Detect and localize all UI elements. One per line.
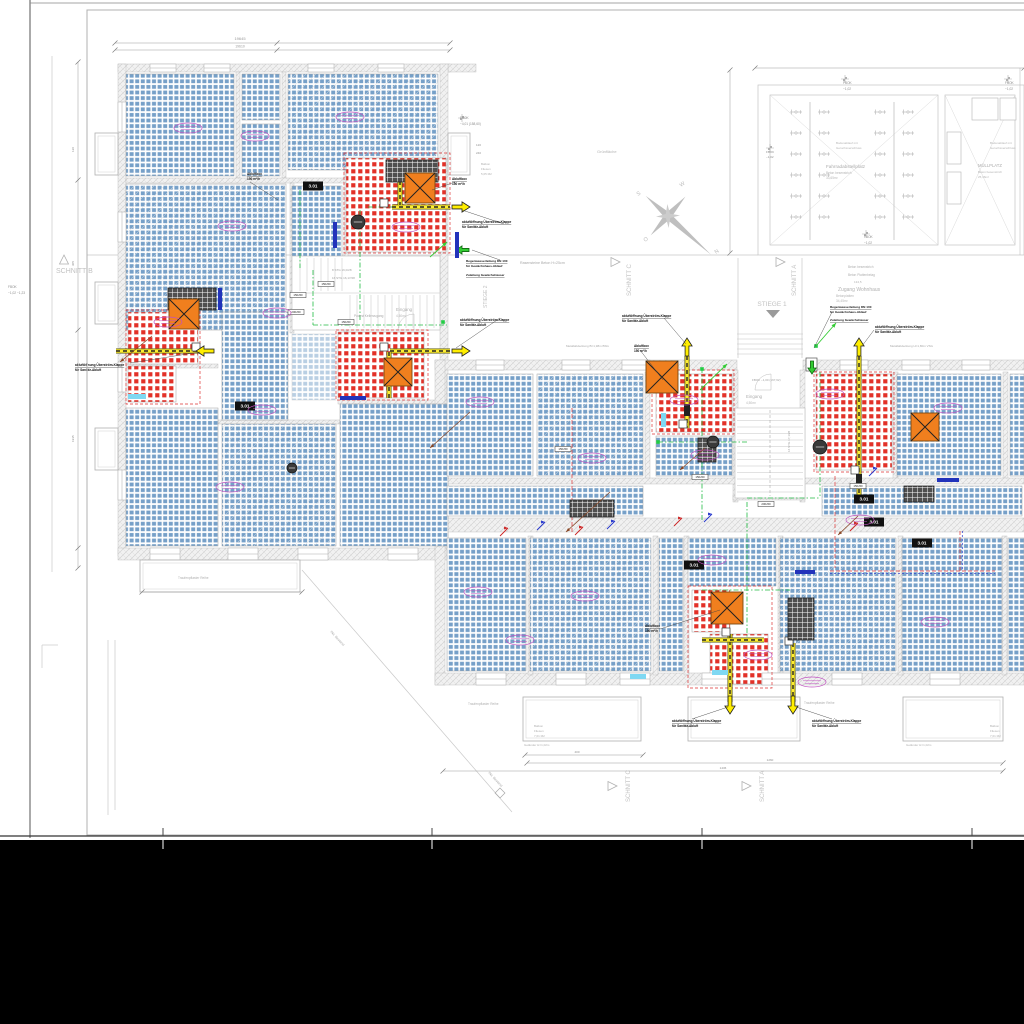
balcony bbox=[140, 560, 300, 592]
supply-node bbox=[656, 440, 660, 444]
wall-segment bbox=[1003, 372, 1008, 480]
plan-label: −1,02 bbox=[766, 155, 774, 159]
plan-label: Metallabdeckung B=1,98m BSG bbox=[566, 344, 609, 348]
boundary-point-diamond bbox=[495, 788, 505, 798]
plan-label: Regenwasserleitung DN 100 bbox=[466, 259, 508, 263]
plan-label: Eingang bbox=[396, 307, 413, 312]
plan-label: Betonplatten bbox=[836, 294, 854, 298]
plan-label: Traufenpflaster Reihe bbox=[468, 702, 499, 706]
balcony bbox=[95, 428, 118, 470]
plan-label: 7,01 M2 bbox=[990, 734, 1001, 738]
plan-label: Beton besenstrich bbox=[848, 265, 874, 269]
exhaust-fan-unit bbox=[384, 358, 412, 386]
bicycle-icon bbox=[902, 131, 914, 136]
plan-label: Bodenablauf mit bbox=[990, 141, 1012, 145]
plan-label: Traufenpflaster Reihe bbox=[804, 701, 835, 705]
plan-label: O bbox=[643, 236, 651, 244]
cross-quad bbox=[845, 77, 847, 79]
plan-label: Geruchsverschluss bbox=[836, 146, 862, 150]
plan-label: für Sanitär-Abluft bbox=[75, 368, 102, 372]
plan-label: −1,02 bbox=[843, 87, 851, 91]
bicycle-icon bbox=[818, 215, 830, 220]
plan-label: SCHNITT B bbox=[56, 268, 93, 275]
plan-label: 150 m³/h bbox=[645, 629, 658, 633]
plan-label: Fliesen bbox=[534, 729, 544, 733]
leader-line bbox=[862, 330, 874, 346]
component-bar bbox=[340, 396, 366, 400]
exhaust-fan-unit bbox=[646, 361, 678, 393]
plan-label: Pkt. Bestand bbox=[329, 630, 345, 647]
bicycle-icon bbox=[874, 194, 886, 199]
bicycle-icon bbox=[790, 110, 802, 115]
plan-label: FBOK bbox=[766, 150, 774, 154]
room-heated-zone bbox=[1010, 374, 1024, 476]
section-marker-triangle bbox=[608, 782, 617, 791]
bicycle-icon bbox=[790, 152, 802, 157]
room-heated-zone bbox=[126, 74, 234, 176]
ventilation-unit bbox=[788, 598, 814, 640]
balcony bbox=[95, 133, 118, 175]
plan-label: Zugang Wohnhaus bbox=[838, 287, 881, 293]
plan-label: SCHNITT A bbox=[760, 771, 766, 802]
plan-label: für Sanitär-Abluft bbox=[462, 225, 489, 229]
balcony bbox=[903, 697, 1003, 741]
plan-label: abluftöffnung Überström-Klappe bbox=[460, 317, 509, 322]
plan-label: Abluftbox bbox=[247, 172, 262, 176]
plan-label: für Sanitär-Abluft bbox=[875, 330, 902, 334]
bicycle-icon bbox=[790, 173, 802, 178]
plan-label: 1260 bbox=[767, 758, 774, 762]
duct-id-text: 3.01 bbox=[860, 497, 869, 502]
room-heated-zone bbox=[659, 538, 683, 671]
plan-label: abluftöffnung Überström-Klappe bbox=[875, 324, 924, 329]
exhaust-fan-unit bbox=[169, 299, 199, 329]
plan-label: S bbox=[636, 190, 643, 197]
wall-segment bbox=[282, 72, 286, 178]
plan-label: Bodenablauf mit bbox=[836, 141, 858, 145]
ventilation-unit bbox=[904, 486, 934, 502]
plan-label: für Gewächshaus-Ablauf bbox=[830, 310, 867, 314]
plan-label: 19645 bbox=[234, 36, 246, 41]
wall-segment bbox=[448, 64, 476, 72]
exhaust-fan-unit bbox=[405, 173, 435, 203]
plan-label: abluftöffnung Überström-Klappe bbox=[622, 313, 671, 318]
plan-label: Metallabdeckung H=1,80m VSG bbox=[890, 344, 934, 348]
door-leaf bbox=[947, 172, 961, 204]
room-heated-zone bbox=[126, 408, 218, 546]
damper bbox=[851, 466, 859, 474]
duct-size-text: 150x50 bbox=[293, 293, 303, 297]
floor-plan-canvas: 3.013.013.013.013.013.01150x50150x50200x… bbox=[0, 0, 1024, 1024]
plan-label: 150 m³/h bbox=[247, 177, 260, 181]
plan-label: Traufenpflaster Reihe bbox=[178, 576, 209, 580]
bicycle-icon bbox=[790, 215, 802, 220]
leader-line bbox=[664, 318, 686, 344]
room-heated-zone bbox=[242, 74, 280, 120]
plan-label: −1,02 −1,23 bbox=[8, 291, 25, 295]
stair-direction-triangle bbox=[766, 310, 780, 318]
damper bbox=[380, 199, 388, 207]
plan-label: 120 bbox=[71, 147, 75, 152]
plan-label: FBOK −1,00 (167,62) bbox=[752, 378, 781, 382]
plan-label: 25,36m² bbox=[978, 175, 989, 179]
duct-id-text: 3.01 bbox=[690, 563, 699, 568]
plan-label: Geländer H=1,02m bbox=[906, 743, 932, 747]
plan-label: SCHNITT C bbox=[626, 769, 632, 802]
plan-label: FBOK bbox=[864, 235, 874, 239]
yard-layer bbox=[458, 75, 1024, 255]
plan-label: Abluftbox bbox=[634, 344, 649, 348]
plan-label: Fliesen bbox=[481, 167, 491, 171]
bicycle-icon bbox=[874, 173, 886, 178]
fire-damper bbox=[684, 404, 690, 416]
plan-label: 120 bbox=[476, 143, 481, 147]
component-bar bbox=[661, 413, 666, 427]
plan-label: 400 bbox=[574, 750, 579, 754]
plan-label: MÜLLPLATZ bbox=[978, 163, 1002, 168]
plan-label: Podest Kellerzugang bbox=[354, 314, 384, 318]
plan-label: Rasensteine Beton H=25cm bbox=[520, 261, 565, 265]
plan-label: Geruchsverschluss bbox=[990, 146, 1016, 150]
plan-label: Pkt. Bestand bbox=[487, 771, 503, 788]
room-heated-zone bbox=[1008, 538, 1024, 671]
component-bar bbox=[333, 222, 337, 248]
room-heated-zone bbox=[340, 404, 448, 546]
damper bbox=[679, 420, 687, 428]
component-bar bbox=[128, 394, 146, 399]
plan-label: N bbox=[714, 248, 721, 255]
bicycle-icon bbox=[818, 152, 830, 157]
bicycle-icon bbox=[902, 215, 914, 220]
room-heated-zone bbox=[447, 538, 526, 671]
plan-label: Regenwasserleitung DN 100 bbox=[830, 305, 872, 309]
room-hatch-overlay bbox=[288, 74, 438, 170]
plan-label: für Gewächshaus-Ablauf bbox=[466, 264, 503, 268]
room-hatch-overlay bbox=[222, 424, 336, 546]
cross-quad bbox=[770, 146, 772, 148]
duct-size-text: 200x50 bbox=[291, 310, 301, 314]
plan-label: 1436 bbox=[720, 766, 727, 770]
duct-id-text: 3.01 bbox=[241, 404, 250, 409]
balcony bbox=[448, 133, 470, 175]
plan-label: abluftöffnung Überström-Klappe bbox=[812, 718, 861, 723]
plan-label: Balkon bbox=[990, 724, 1000, 728]
supply-flow-arrow bbox=[816, 323, 836, 346]
plan-label: 4,50m² bbox=[396, 314, 406, 318]
plan-label: 4,50m² bbox=[746, 401, 756, 405]
plan-label: Zuleitung Gewächshäuser bbox=[466, 273, 505, 277]
plan-label: −4,01 (158,60) bbox=[460, 122, 481, 126]
plan-label: 16 STG 17,1/28 bbox=[787, 430, 791, 452]
exhaust-outlet-arrow bbox=[452, 346, 470, 356]
plan-label: SCHNITT C bbox=[627, 263, 633, 296]
bicycle-icon bbox=[902, 194, 914, 199]
plan-label: STIEGE 2 bbox=[483, 285, 489, 308]
bicycle-icon bbox=[818, 194, 830, 199]
duct-size-text: 150x50 bbox=[341, 320, 351, 324]
bicycle-icon bbox=[818, 110, 830, 115]
plan-label: 19610 bbox=[235, 45, 245, 49]
cad-floor-plan-page: 3.013.013.013.013.013.01150x50150x50200x… bbox=[0, 0, 1024, 1024]
plan-label: 16 STG 16,17/28 bbox=[332, 276, 355, 280]
plan-label: für Sanitär-Abluft bbox=[622, 319, 649, 323]
duct-size-text: 150x50 bbox=[695, 475, 705, 479]
bicycle-icon bbox=[874, 110, 886, 115]
plan-label: FBOK bbox=[460, 116, 470, 120]
plan-label: 305 bbox=[71, 261, 75, 266]
supply-node bbox=[700, 367, 704, 371]
wall-segment bbox=[236, 72, 240, 178]
plan-label: SCHNITT A bbox=[792, 265, 798, 296]
plan-label: Balkon bbox=[481, 162, 491, 166]
plan-label: STIEGE 1 bbox=[757, 301, 787, 308]
plan-label: Beton besenstrich bbox=[978, 170, 1002, 174]
damper bbox=[380, 343, 388, 351]
duct-id-text: 3.01 bbox=[918, 541, 927, 546]
section-marker-triangle bbox=[776, 258, 785, 267]
bicycle-icon bbox=[874, 152, 886, 157]
page-margin-black bbox=[0, 840, 1024, 1024]
room-hatch-overlay bbox=[530, 538, 651, 671]
room-heated-zone bbox=[292, 334, 336, 400]
bicycle-icon bbox=[790, 194, 802, 199]
wall-segment bbox=[435, 478, 1024, 484]
bicycle-icon bbox=[902, 110, 914, 115]
plan-label: 240 bbox=[476, 151, 481, 155]
wall-segment bbox=[435, 518, 1024, 532]
plan-label: 33,65m² bbox=[826, 176, 838, 180]
bicycle-icon bbox=[818, 131, 830, 136]
plan-label: Zuleitung Gewächshäuser bbox=[830, 318, 869, 322]
plan-label: FBOK bbox=[1005, 81, 1015, 85]
plan-label: 8 STG 16,0/28 bbox=[332, 268, 352, 272]
component-bar bbox=[795, 570, 815, 574]
duct-size-text: 200x50 bbox=[761, 502, 771, 506]
plan-label: Geländer H=1,02m bbox=[524, 743, 550, 747]
door-swing-arc bbox=[755, 374, 771, 390]
bicycle-icon bbox=[874, 131, 886, 136]
plan-label: −1,02 bbox=[1005, 87, 1013, 91]
plan-label: Abluftbox bbox=[645, 624, 660, 628]
plan-label: Grünfläche bbox=[597, 149, 617, 154]
wall-segment bbox=[218, 420, 340, 424]
exhaust-fan-unit bbox=[711, 592, 743, 624]
plan-label: Beton Plattenbelag bbox=[848, 273, 875, 277]
wall-segment bbox=[1002, 536, 1007, 675]
plan-label: Abluftbox bbox=[452, 177, 467, 181]
plan-label: abluftöffnung Überström-Klappe bbox=[462, 219, 511, 224]
room-heated-zone bbox=[447, 374, 533, 476]
cross-quad bbox=[866, 232, 868, 234]
duct-id-text: 3.01 bbox=[309, 184, 318, 189]
supply-node bbox=[441, 320, 445, 324]
section-marker-triangle bbox=[742, 782, 751, 791]
plan-label: W bbox=[679, 180, 687, 188]
plan-label: abluftöffnung Überström-Klappe bbox=[75, 362, 124, 367]
leader-line bbox=[796, 707, 832, 719]
plan-label: 134,5 bbox=[854, 280, 862, 284]
plan-label: FBOK bbox=[8, 285, 18, 289]
cross-quad bbox=[1008, 77, 1010, 79]
plan-label: 34,45m² bbox=[836, 299, 848, 303]
duct-size-text: 150x50 bbox=[558, 447, 568, 451]
room-hatch-overlay bbox=[537, 374, 643, 476]
door-leaf bbox=[947, 132, 961, 164]
duct-size-text: 150x50 bbox=[853, 484, 863, 488]
plan-label: abluftöffnung Überström-Klappe bbox=[672, 718, 721, 723]
plan-label: Fliesen bbox=[990, 729, 1000, 733]
balcony bbox=[95, 282, 118, 324]
plan-label: Beton besenstrich bbox=[826, 171, 852, 175]
duct-size-text: 150x50 bbox=[321, 282, 331, 286]
plan-label: 7,01 M2 bbox=[534, 734, 545, 738]
exhaust-fan-unit bbox=[911, 413, 939, 441]
plan-label: für Sanitär-Abluft bbox=[460, 323, 487, 327]
component-bar bbox=[455, 232, 459, 258]
plan-label: FBOK bbox=[843, 81, 853, 85]
plan-label: 150 m³/h bbox=[452, 182, 465, 186]
plan-label: Balkon bbox=[534, 724, 544, 728]
section-marker-triangle bbox=[611, 258, 620, 267]
plan-label: 5,05 M2 bbox=[481, 172, 492, 176]
plan-label: Eingang bbox=[746, 394, 763, 399]
section-marker-triangle bbox=[60, 255, 69, 264]
plan-label: für Sanitär-Abluft bbox=[672, 724, 699, 728]
door-leaf bbox=[972, 98, 998, 120]
component-bar bbox=[712, 670, 728, 675]
bicycle-icon bbox=[902, 173, 914, 178]
plan-label: 1935 bbox=[71, 435, 75, 442]
compass-rose-icon bbox=[646, 196, 711, 255]
damper bbox=[722, 628, 730, 636]
room-exhaust-zone bbox=[816, 374, 892, 470]
wall-segment bbox=[653, 536, 658, 675]
plan-label: −1,02 bbox=[864, 241, 872, 245]
plan-label: 150 m³/h bbox=[634, 349, 647, 353]
bicycle-icon bbox=[790, 131, 802, 136]
exhaust-outlet-arrow bbox=[854, 338, 864, 356]
component-bar bbox=[630, 674, 646, 679]
component-bar bbox=[937, 478, 959, 482]
bicycle-icon bbox=[874, 215, 886, 220]
component-bar bbox=[218, 288, 222, 310]
bicycle-icon bbox=[902, 152, 914, 157]
plan-label: Fahrradabstellplatz bbox=[826, 164, 866, 169]
door-leaf bbox=[1000, 98, 1016, 120]
exhaust-outlet-arrow bbox=[452, 202, 470, 212]
room-heated-zone bbox=[902, 538, 1002, 671]
wall-segment bbox=[338, 400, 448, 404]
plan-label: für Sanitär-Abluft bbox=[812, 724, 839, 728]
